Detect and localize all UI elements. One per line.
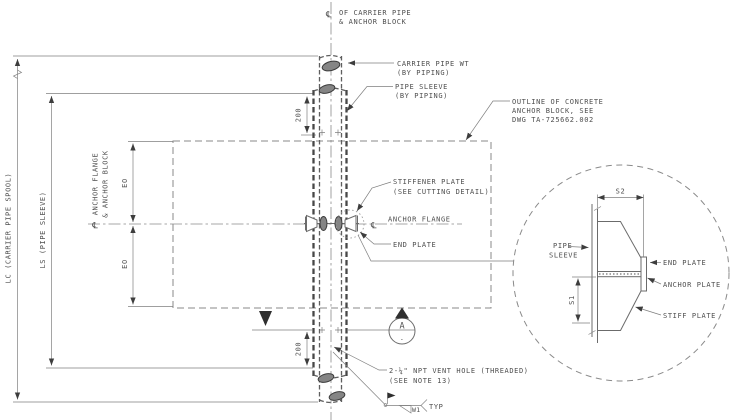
centerline-callout: OF CARRIER PIPE (339, 9, 411, 17)
stiffener-plate-label: STIFFENER PLATE (393, 178, 465, 186)
centerline-symbol: ℄ (91, 221, 98, 231)
eo-lower-label: EO (121, 259, 129, 269)
anchor-block-drawing: OUTLINE OF CONCRETE ANCHOR BLOCK, SEE DW… (0, 0, 732, 420)
section-letter: A (399, 322, 404, 332)
anchor-block-outline (173, 141, 491, 308)
detail-view: S2 S1 PIPE SLEEVE END PLATE ANCHOR PLATE… (358, 165, 729, 381)
pipe-top-cap (320, 56, 342, 59)
sleeve-wall-section (318, 83, 335, 95)
detail-end-plate-label: END PLATE (663, 259, 706, 267)
carrier-pipe-wt-label: CARRIER PIPE WT (397, 60, 469, 68)
s1-label: S1 (568, 295, 576, 305)
field-weld-flag (388, 393, 396, 399)
pipe-bottom-cap (320, 400, 342, 403)
top-200-label: 200 (295, 108, 303, 122)
anchor-axis-label: ANCHOR FLANGE (92, 153, 100, 216)
end-plate-label: END PLATE (393, 241, 436, 249)
detail-anchor-plate-leader (648, 278, 662, 284)
left-dimensions: LC (CARRIER PIPE SPOOL) LS (PIPE SLEEVE)… (5, 56, 319, 402)
detail-stiffener-top (598, 222, 642, 259)
weld-size-label: W1 (412, 406, 420, 414)
detail-stiff-plate-leader (636, 307, 662, 315)
concrete-outline-label: OUTLINE OF CONCRETE (512, 98, 603, 106)
top-callouts: ℄ OF CARRIER PIPE & ANCHOR BLOCK CARRIER… (325, 9, 469, 111)
concrete-outline-label: DWG TA-725662.002 (512, 116, 594, 124)
eo-upper-label: EO (121, 178, 129, 188)
lc-dimension-label: LC (CARRIER PIPE SPOOL) (5, 173, 13, 284)
vent-hole-label: (SEE NOTE 13) (389, 377, 452, 385)
detail-stiff-plate-label: STIFF PLATE (663, 312, 716, 320)
anchor-flange-label: ANCHOR FLANGE (388, 216, 451, 224)
pipe-sleeve-leader (347, 87, 393, 112)
offset-dimensions: 200 200 (295, 97, 342, 366)
engineering-drawing-page: OUTLINE OF CONCRETE ANCHOR BLOCK, SEE DW… (0, 0, 732, 420)
section-arrow-up (395, 308, 409, 319)
left-stiffener (307, 216, 318, 232)
weld-typ-label: TYP (429, 403, 443, 411)
bottom-callouts: 2-¼" NPT VENT HOLE (THREADED) (SEE NOTE … (333, 347, 529, 414)
detail-pipe-sleeve-label: PIPE (553, 242, 572, 250)
outline-leader (466, 101, 510, 140)
s2-label: S2 (616, 188, 626, 196)
centerline-symbol: ℄ (370, 221, 377, 231)
middle-callouts: STIFFENER PLATE (SEE CUTTING DETAIL) ℄ A… (357, 178, 489, 249)
detail-stiffener-bottom (598, 291, 642, 331)
concrete-outline-label: ANCHOR BLOCK, SEE (512, 107, 594, 115)
stiffener-plate-leader (357, 182, 391, 211)
detail-pipe-sleeve-label: SLEEVE (549, 252, 578, 260)
pipe-wall-section (321, 59, 341, 72)
pipe-sleeve-label: PIPE SLEEVE (395, 83, 448, 91)
section-arrow-left (259, 311, 272, 326)
carrier-pipe-and-sleeve (314, 56, 347, 403)
pipe-break-marks (589, 207, 602, 335)
section-sheet-ref: - (400, 336, 404, 344)
bottom-200-label: 200 (295, 342, 303, 356)
pipe-sleeve-label: (BY PIPING) (395, 92, 448, 100)
fillet-weld-symbol (400, 406, 412, 414)
vent-hole-label: 2-¼" NPT VENT HOLE (THREADED) (389, 367, 529, 375)
weld-leader-dot (384, 404, 387, 407)
centerline-callout: & ANCHOR BLOCK (339, 18, 407, 26)
detail-end-plate (641, 257, 647, 291)
stiffener-plate-label: (SEE CUTTING DETAIL) (393, 188, 489, 196)
anchor-axis-label: & ANCHOR BLOCK (102, 150, 110, 218)
carrier-pipe-wt-label: (BY PIPING) (397, 69, 450, 77)
centerline-symbol: ℄ (325, 10, 332, 20)
end-plate-leader (360, 232, 391, 244)
section-a-marker: A - (252, 308, 415, 345)
ls-dimension-label: LS (PIPE SLEEVE) (39, 191, 47, 268)
pipe-wall-through-flange (320, 217, 327, 231)
weld-tail (421, 400, 427, 412)
detail-anchor-plate-label: ANCHOR PLATE (663, 281, 721, 289)
